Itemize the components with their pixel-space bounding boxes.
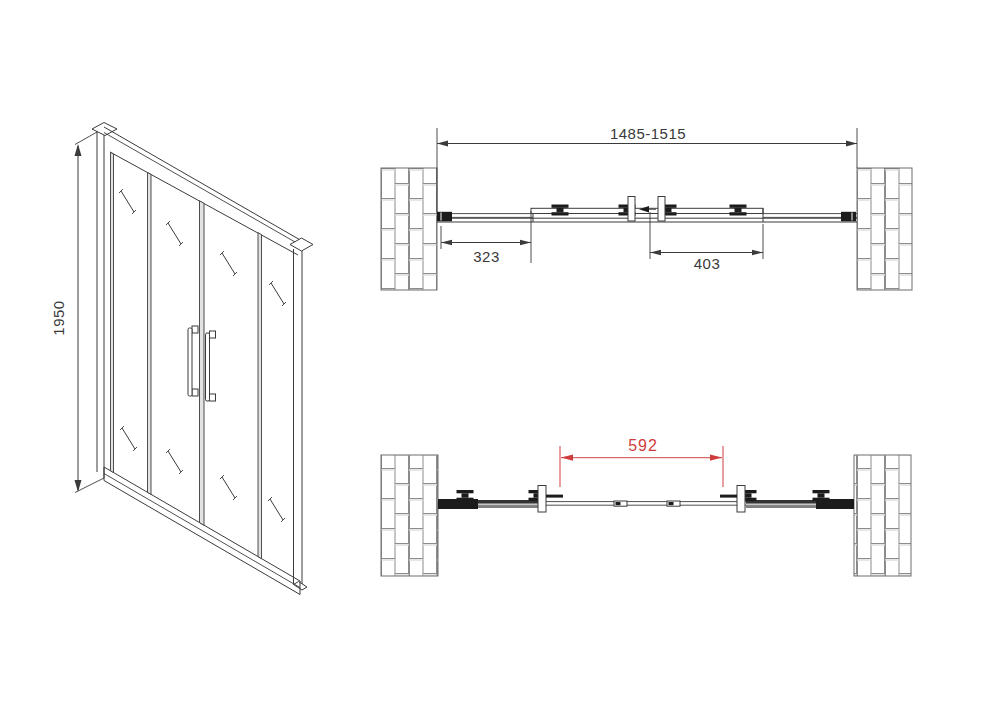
left-glass-stile — [111, 152, 114, 472]
arrow-left-icon — [561, 454, 573, 460]
glass-shine-icon — [220, 475, 237, 500]
glass-shine-icon — [119, 189, 136, 214]
glass-shine-icon — [166, 221, 183, 246]
arrow-right-icon — [846, 141, 857, 147]
brick-wall-left — [381, 168, 437, 290]
wall-clamp — [841, 212, 856, 222]
glass-shine-icon — [120, 426, 137, 451]
arrow-right-icon — [752, 250, 763, 255]
glass-shine-icon — [220, 251, 237, 276]
panel-divider-3 — [258, 233, 262, 559]
track-guide-block — [669, 502, 674, 505]
glass-shine-icon — [268, 497, 285, 522]
right-fixed-panel — [763, 208, 857, 222]
front-view: 1950 — [50, 123, 313, 595]
brick-wall-right — [857, 168, 912, 290]
door-panel-dimension: 403 — [650, 212, 763, 272]
drawing-svg: 1950 — [0, 0, 1000, 707]
glass-shine-icon — [269, 281, 286, 306]
glass-shine-icon — [166, 449, 183, 474]
arrow-left-icon — [650, 250, 661, 255]
brick-wall-right — [854, 455, 911, 576]
arrow-up-icon — [75, 144, 82, 156]
wall-clamp — [437, 212, 452, 222]
panel-divider-1 — [148, 173, 152, 495]
profile-top-cap — [92, 123, 117, 136]
opening-dimension-label: 592 — [628, 437, 658, 454]
arrow-right-icon — [710, 454, 722, 460]
arrow-left-icon — [437, 141, 448, 147]
left-panel-dimension: 323 — [441, 211, 531, 265]
plan-closed-view: 1485-1515 — [381, 125, 912, 290]
handle-bar — [546, 495, 563, 498]
handle-tab — [658, 197, 665, 222]
panel-divider-center — [200, 201, 205, 525]
arrow-left-icon — [441, 240, 452, 245]
left-stacked-panels — [438, 486, 563, 513]
left-fixed-panel — [437, 208, 533, 222]
left-door-handle — [188, 326, 198, 396]
track-guide-block — [616, 502, 621, 505]
handle-tab — [628, 197, 635, 222]
left-panel-dimension-label: 323 — [473, 248, 500, 265]
handle-tab — [538, 486, 546, 513]
technical-drawing-canvas: 1950 — [0, 0, 1000, 707]
height-dimension: 1950 — [50, 128, 104, 493]
opening-dimension: 592 — [560, 437, 723, 488]
sliding-rail — [531, 197, 763, 222]
handle-bar — [720, 495, 737, 498]
arrow-right-icon — [520, 240, 531, 245]
roller-assembly — [813, 490, 830, 501]
overall-width-dimension: 1485-1515 — [437, 125, 857, 212]
roller-assembly — [457, 490, 474, 501]
right-door-handle — [206, 331, 216, 401]
right-stacked-panels — [720, 486, 854, 513]
height-dimension-label: 1950 — [50, 300, 67, 335]
handle-tab — [737, 486, 745, 513]
brick-wall-left — [381, 455, 438, 576]
door-panel-dimension-label: 403 — [694, 255, 721, 272]
right-stile — [290, 238, 313, 590]
plan-open-view: 592 — [381, 437, 911, 577]
overall-width-label: 1485-1515 — [610, 125, 686, 142]
